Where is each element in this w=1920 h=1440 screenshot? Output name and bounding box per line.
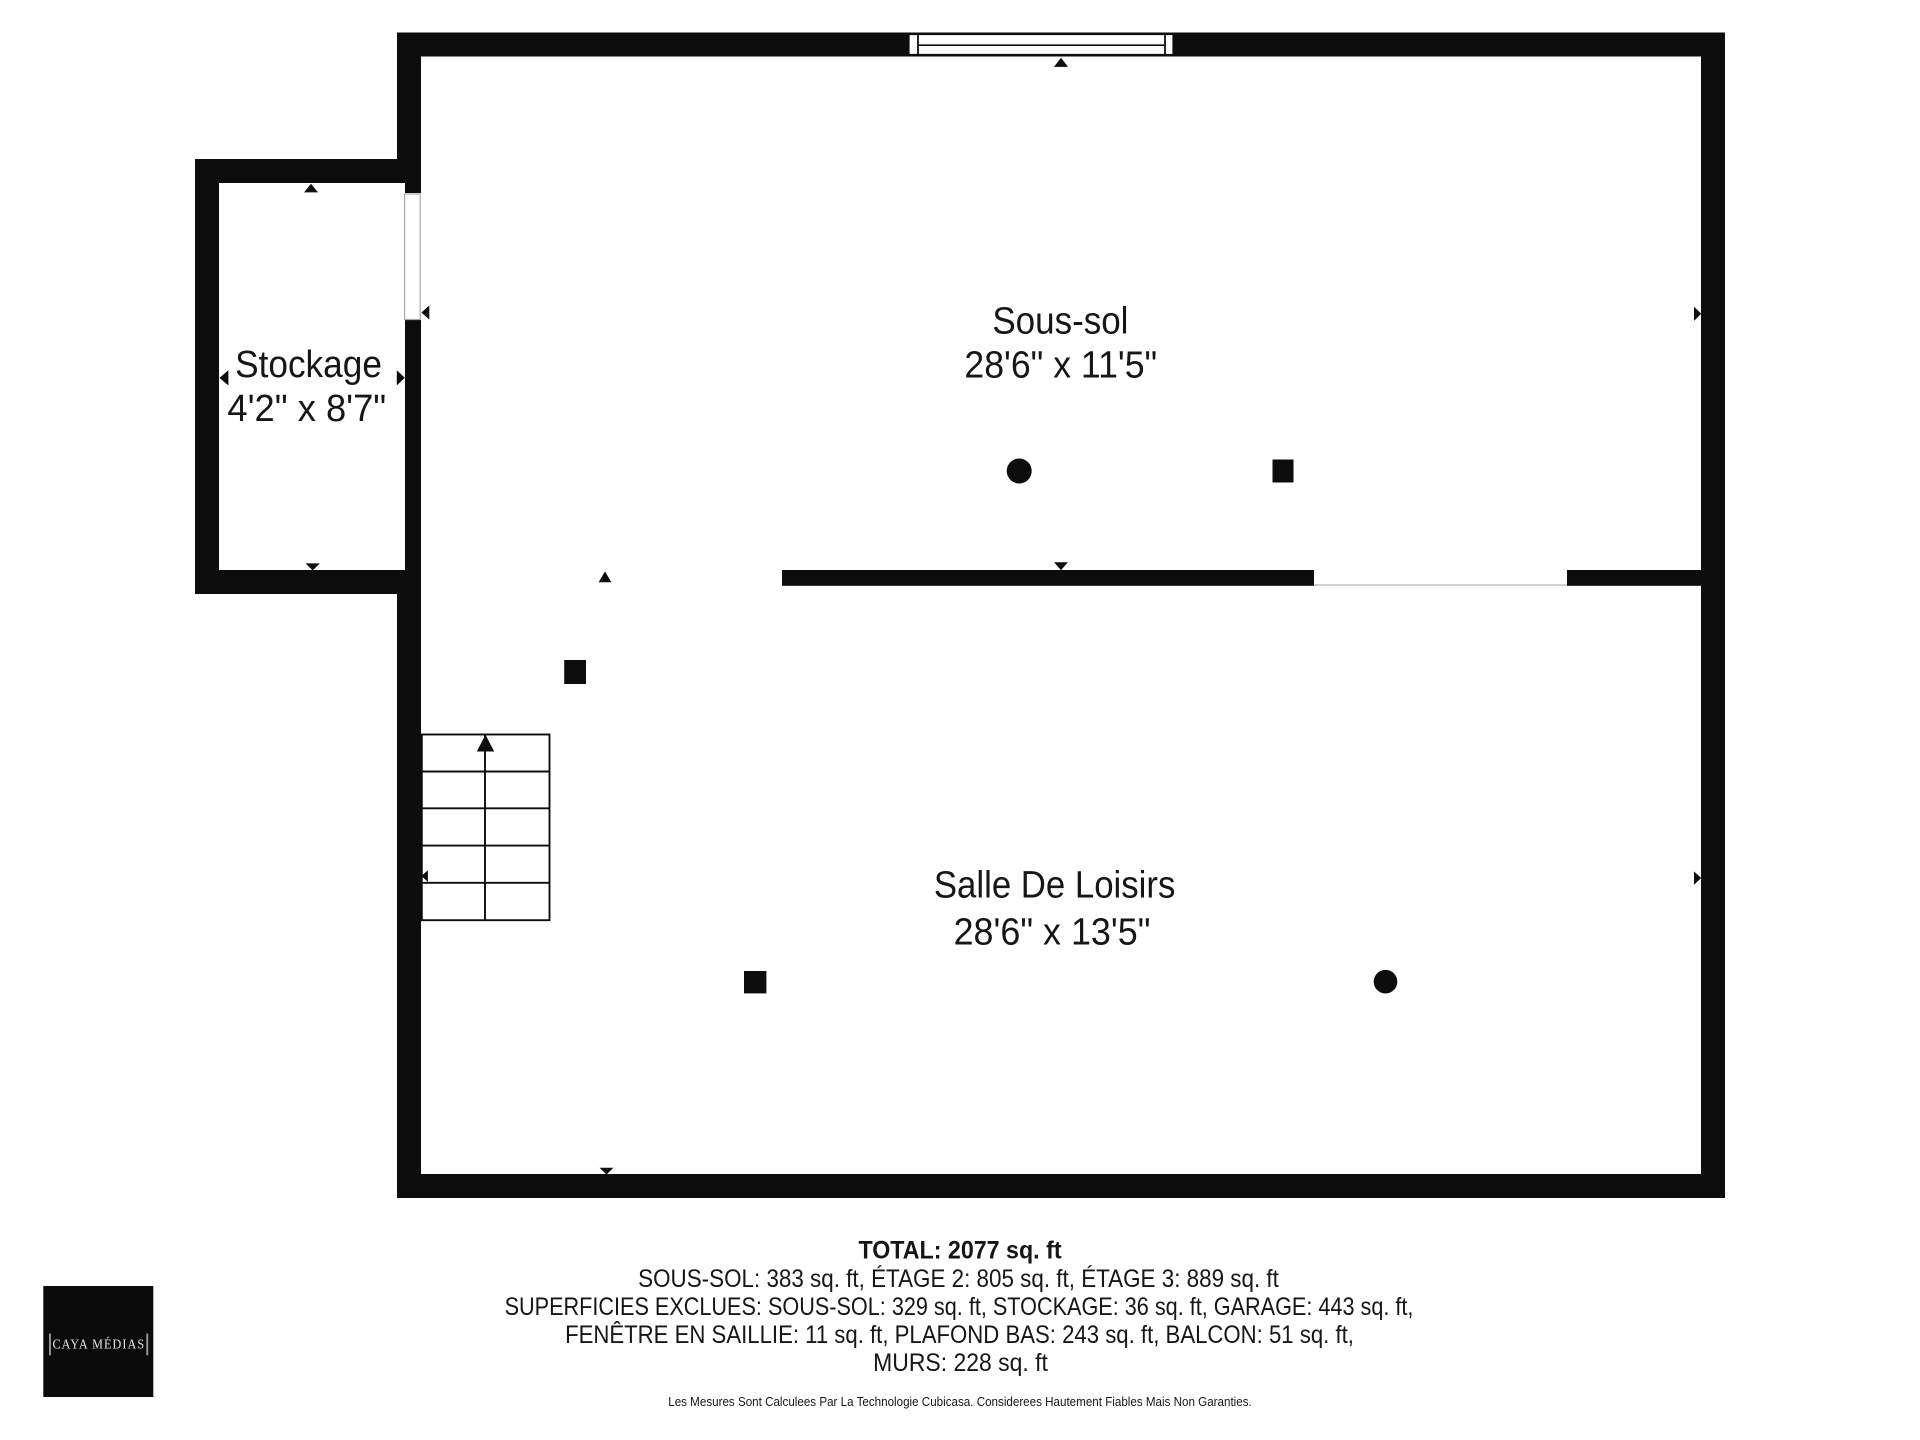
- svg-text:Les Mesures Sont Calculees Par: Les Mesures Sont Calculees Par La Techno…: [668, 1395, 1252, 1409]
- svg-text:SOUS-SOL: 383 sq. ft, ÉTAGE 2:: SOUS-SOL: 383 sq. ft, ÉTAGE 2: 805 sq. f…: [638, 1265, 1279, 1293]
- svg-text:TOTAL: 2077 sq. ft: TOTAL: 2077 sq. ft: [858, 1237, 1061, 1265]
- svg-text:Salle De Loisirs: Salle De Loisirs: [934, 863, 1175, 906]
- svg-text:28'6" x 11'5": 28'6" x 11'5": [964, 343, 1157, 385]
- svg-text:MURS: 228 sq. ft: MURS: 228 sq. ft: [873, 1349, 1048, 1377]
- svg-text:4'2" x 8'7": 4'2" x 8'7": [227, 386, 386, 429]
- svg-text:28'6" x 13'5": 28'6" x 13'5": [954, 910, 1151, 952]
- svg-text:SUPERFICIES EXCLUES: SOUS-SOL:: SUPERFICIES EXCLUES: SOUS-SOL: 329 sq. f…: [505, 1293, 1414, 1321]
- svg-text:FENÊTRE EN SAILLIE: 11 sq. ft,: FENÊTRE EN SAILLIE: 11 sq. ft, PLAFOND B…: [565, 1321, 1354, 1350]
- svg-text:Sous-sol: Sous-sol: [992, 299, 1128, 342]
- svg-text:Stockage: Stockage: [235, 343, 382, 386]
- svg-text:CAYA MÉDIAS: CAYA MÉDIAS: [52, 1337, 145, 1352]
